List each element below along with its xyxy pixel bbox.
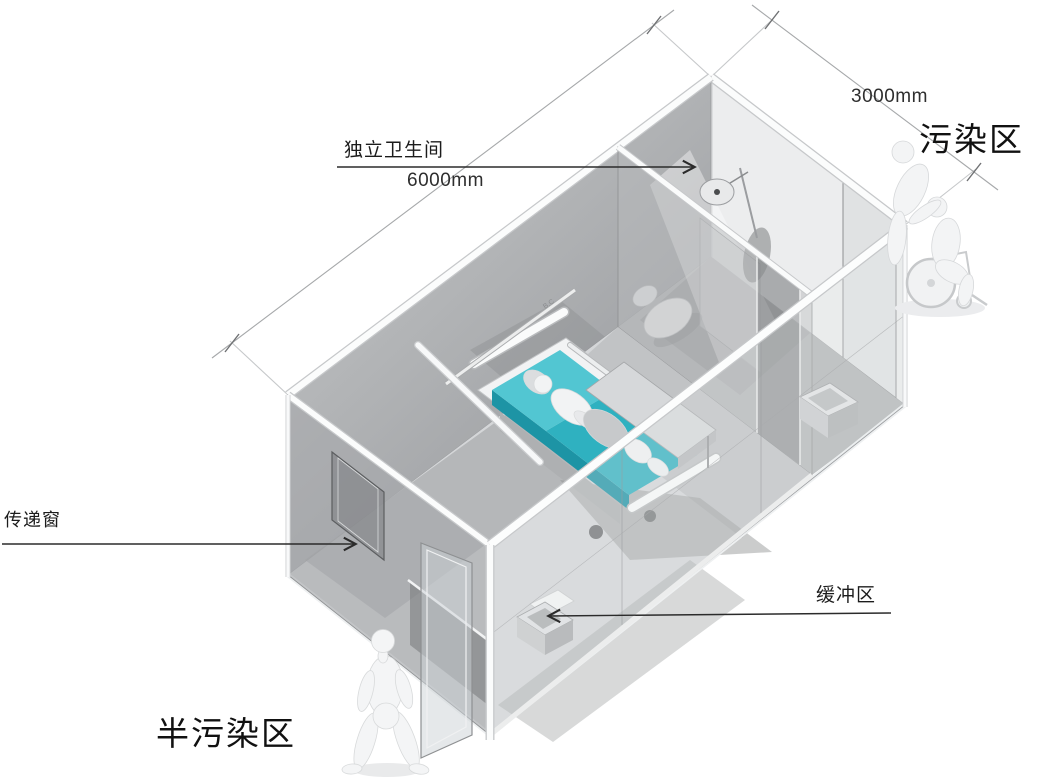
label-semi-contaminated-zone: 半污染区 — [156, 716, 296, 752]
axonometric-scene: B.C — [0, 0, 1050, 779]
isolation-ward-diagram: B.C — [0, 0, 1050, 779]
label-transfer-window: 传递窗 — [4, 511, 61, 531]
label-contaminated-zone: 污染区 — [919, 122, 1024, 158]
sliding-glass-door — [421, 543, 472, 758]
label-buffer-zone: 缓冲区 — [816, 586, 876, 607]
label-dimension-length: 6000mm — [407, 171, 484, 192]
label-dimension-width: 3000mm — [851, 87, 928, 108]
label-bathroom: 独立卫生间 — [344, 141, 444, 162]
